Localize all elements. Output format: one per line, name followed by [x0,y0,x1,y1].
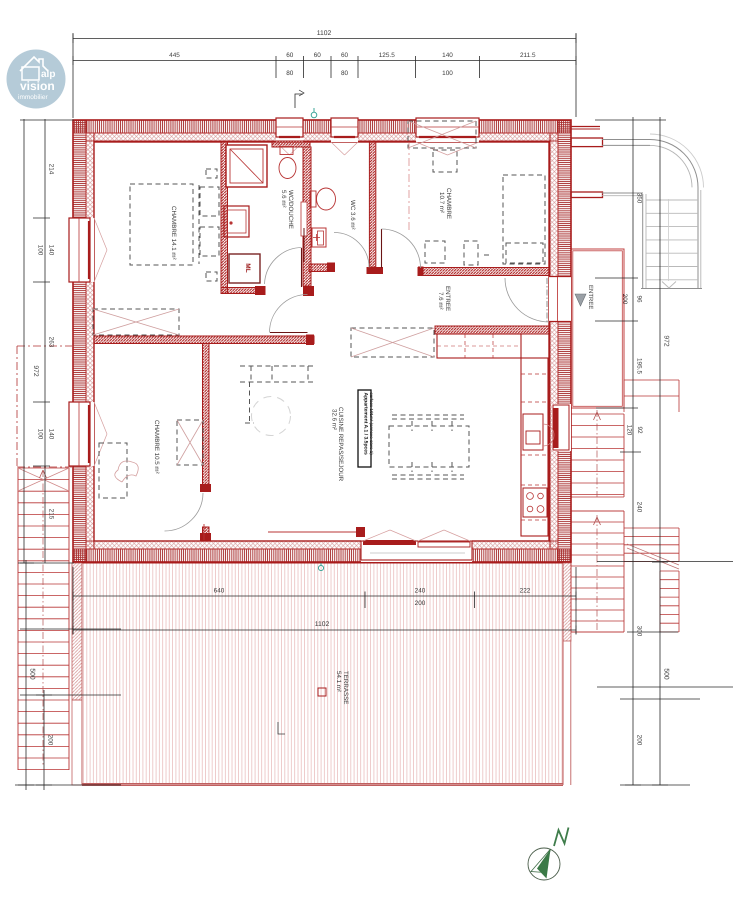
svg-text:240: 240 [415,588,426,595]
svg-text:surface 101m² (annexe cave 1): surface 101m² (annexe cave 1) [369,393,374,456]
svg-text:TERRASSE: TERRASSE [342,671,349,704]
svg-text:140: 140 [442,52,453,59]
svg-text:10.7 m²: 10.7 m² [438,192,445,213]
svg-text:200: 200 [636,735,643,746]
svg-text:140: 140 [48,429,55,440]
svg-text:ENTREE: ENTREE [587,285,594,309]
svg-text:54.1 m²: 54.1 m² [335,671,342,692]
svg-text:7.6 m²: 7.6 m² [437,292,444,310]
svg-text:80: 80 [286,70,294,77]
svg-text:CHAMBRE: CHAMBRE [445,188,452,219]
svg-text:96: 96 [636,295,643,303]
svg-text:ENTREE: ENTREE [444,286,451,311]
svg-text:100: 100 [37,429,44,440]
svg-text:140: 140 [48,245,55,256]
svg-text:200: 200 [47,735,54,746]
svg-text:1102: 1102 [317,30,332,37]
svg-text:WC 3.6 m²: WC 3.6 m² [349,200,356,230]
svg-text:80: 80 [341,70,349,77]
svg-text:972: 972 [32,365,39,377]
svg-text:195.5: 195.5 [636,358,643,374]
svg-text:500: 500 [29,668,36,680]
svg-text:immobilier: immobilier [18,94,48,101]
svg-text:CHAMBRE 14.1 m²: CHAMBRE 14.1 m² [170,206,177,260]
svg-text:300: 300 [636,626,643,637]
svg-text:120: 120 [626,425,633,436]
svg-text:240: 240 [636,502,643,513]
svg-text:vision: vision [20,79,55,93]
svg-text:60: 60 [341,52,349,59]
svg-text:ML: ML [244,263,251,272]
svg-text:972: 972 [663,335,670,347]
svg-text:5.6 m²: 5.6 m² [280,190,287,208]
svg-text:Appartement A.1 / 3.5pces: Appartement A.1 / 3.5pces [363,393,369,456]
svg-text:445: 445 [169,52,180,59]
svg-text:32.6 m²: 32.6 m² [331,409,338,430]
svg-text:1102: 1102 [315,621,330,628]
svg-text:222: 222 [520,588,531,595]
svg-text:WC/DOUCHE: WC/DOUCHE [287,190,294,229]
svg-text:100: 100 [37,245,44,256]
svg-text:350: 350 [636,193,643,204]
svg-text:60: 60 [286,52,294,59]
svg-text:214: 214 [48,164,55,175]
svg-text:215: 215 [48,509,55,520]
svg-text:100: 100 [442,70,453,77]
svg-text:500: 500 [663,668,670,680]
svg-text:125.5: 125.5 [379,52,395,59]
svg-text:60: 60 [314,52,322,59]
svg-text:640: 640 [214,588,225,595]
svg-text:200: 200 [415,600,426,607]
svg-text:92: 92 [636,426,643,434]
svg-text:263: 263 [48,337,55,348]
svg-text:200: 200 [621,294,628,305]
svg-text:CHAMBRE 10.5 m²: CHAMBRE 10.5 m² [153,420,160,474]
svg-text:211.5: 211.5 [520,52,536,59]
